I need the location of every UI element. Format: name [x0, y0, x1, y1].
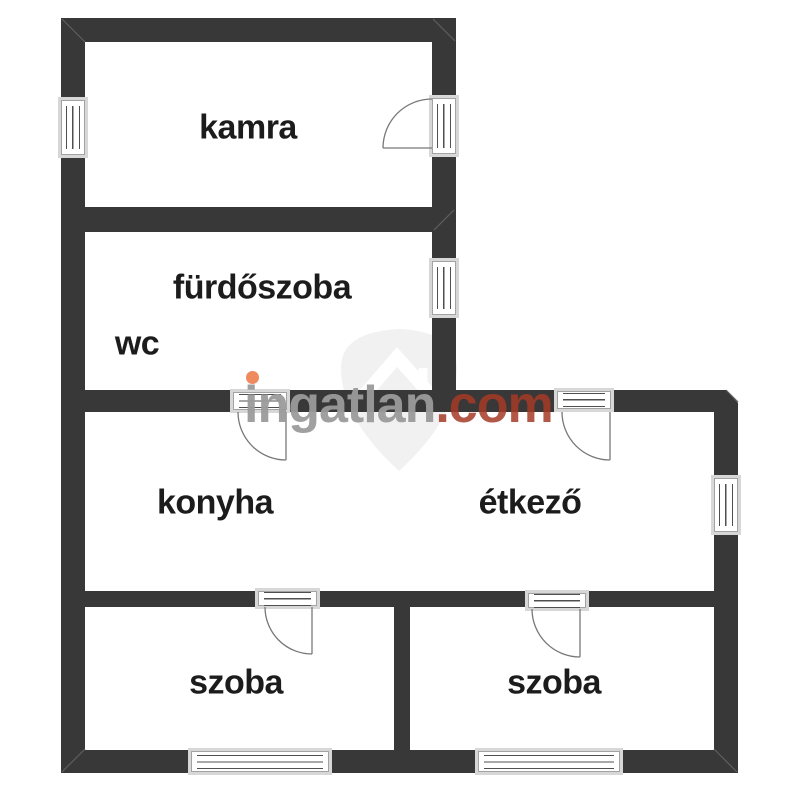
- room-label-wc: wc: [115, 325, 159, 364]
- floor-plan: kamra fürdőszoba wc konyha étkező szoba …: [0, 0, 800, 795]
- door-leaf-lines: [534, 594, 580, 608]
- door-szoba-right: [525, 590, 589, 611]
- door-arc-szoba-right: [532, 609, 580, 657]
- door-arc-entrance: [562, 412, 610, 460]
- wall-bottom-left: [61, 750, 190, 773]
- wall-right-exterior: [714, 390, 738, 773]
- wall-mid-divider-center: [318, 591, 530, 607]
- wall-bottom-right: [621, 750, 738, 773]
- window-glass: [437, 267, 451, 309]
- window-glass: [484, 755, 614, 769]
- room-label-szoba-right: szoba: [507, 664, 601, 703]
- wall-konyha-top-left: [85, 390, 232, 412]
- wall-bottom-center: [330, 750, 477, 773]
- room-label-furdoszoba: fürdőszoba: [173, 269, 351, 308]
- wall-top-exterior: [61, 18, 456, 42]
- window-szoba-right-bottom: [475, 748, 623, 775]
- wall-kamra-right-mid: [432, 157, 456, 258]
- wall-kamra-right-upper: [432, 42, 456, 95]
- door-leaf-lines: [264, 592, 311, 606]
- room-label-konyha: konyha: [157, 484, 273, 523]
- wall-mid-divider-right: [586, 591, 714, 607]
- wall-mid-divider-left: [85, 591, 258, 607]
- door-kamra-exterior: [429, 95, 459, 157]
- watermark-brand-gray: ingatlan: [244, 376, 435, 434]
- window-furdoszoba-right: [429, 258, 459, 318]
- door-entrance-etkezo: [554, 388, 614, 412]
- window-kamra-left: [58, 97, 88, 158]
- window-glass: [66, 106, 80, 149]
- window-glass: [719, 484, 733, 526]
- door-leaf-lines: [437, 104, 451, 148]
- window-glass: [197, 755, 323, 769]
- window-etkezo-right: [711, 475, 741, 535]
- wall-szoba-divider: [394, 591, 410, 752]
- watermark-i-dot: [246, 371, 259, 384]
- door-arc-kamra: [383, 99, 432, 148]
- room-label-szoba-left: szoba: [189, 664, 283, 703]
- room-label-etkezo: étkező: [479, 484, 582, 523]
- room-label-kamra: kamra: [199, 109, 297, 148]
- ingatlan-watermark: ingatlan.com: [244, 379, 553, 431]
- wall-kamra-furdoszoba-divider: [85, 207, 432, 232]
- door-leaf-lines: [563, 393, 605, 407]
- door-szoba-left: [255, 588, 320, 609]
- door-arc-szoba-left: [265, 607, 312, 654]
- watermark-brand-red: .com: [435, 376, 552, 434]
- window-szoba-left-bottom: [188, 748, 332, 775]
